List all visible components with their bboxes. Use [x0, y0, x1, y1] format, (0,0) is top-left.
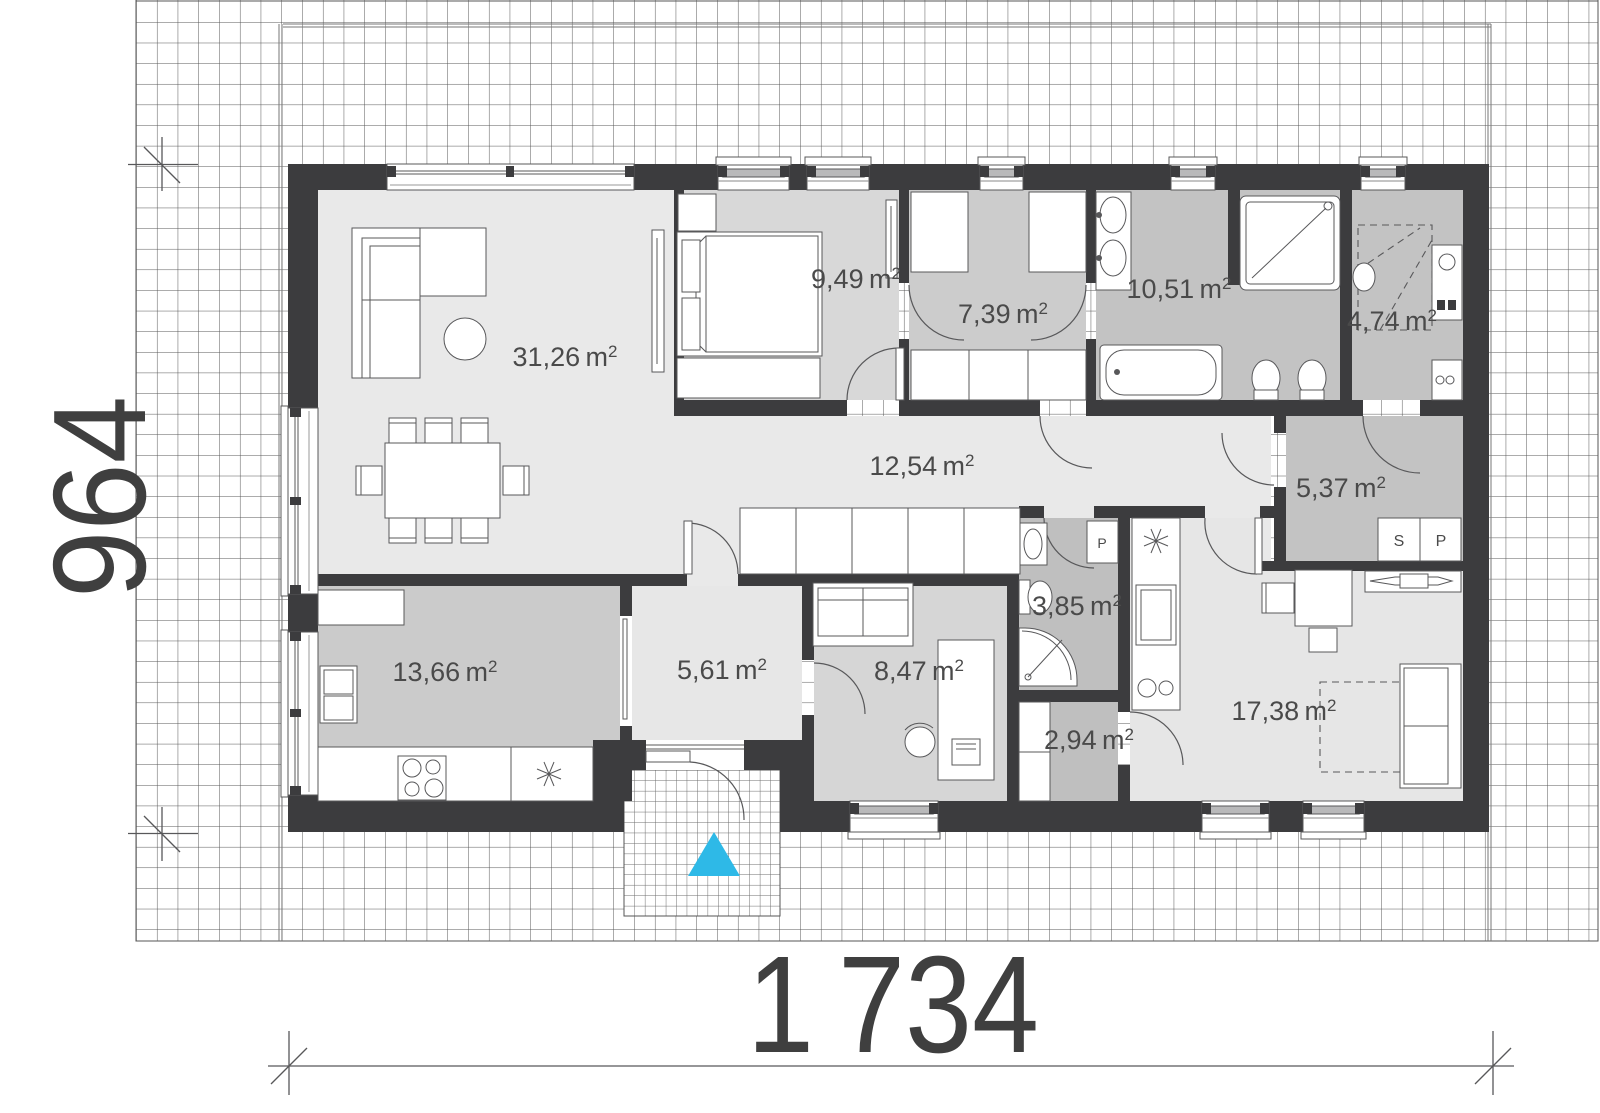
svg-text:P: P: [1097, 535, 1106, 551]
svg-text:4,74 m2: 4,74 m2: [1347, 306, 1437, 336]
svg-text:7,39 m2: 7,39 m2: [958, 299, 1048, 329]
svg-text:3,85 m2: 3,85 m2: [1032, 591, 1122, 621]
svg-text:9,49 m2: 9,49 m2: [811, 264, 901, 294]
svg-text:5,37 m2: 5,37 m2: [1296, 473, 1386, 503]
svg-text:10,51 m2: 10,51 m2: [1127, 274, 1232, 304]
svg-text:5,61 m2: 5,61 m2: [677, 655, 767, 685]
svg-text:S: S: [1394, 533, 1405, 550]
svg-text:13,66 m2: 13,66 m2: [393, 657, 498, 687]
svg-text:P: P: [1436, 533, 1447, 550]
svg-text:8,47 m2: 8,47 m2: [874, 656, 964, 686]
svg-text:17,38 m2: 17,38 m2: [1232, 696, 1337, 726]
svg-text:12,54 m2: 12,54 m2: [870, 451, 975, 481]
svg-text:2,94 m2: 2,94 m2: [1044, 725, 1134, 755]
svg-text:31,26 m2: 31,26 m2: [513, 342, 618, 372]
svg-text:964: 964: [26, 396, 173, 598]
svg-text:1 734: 1 734: [747, 928, 1039, 1082]
